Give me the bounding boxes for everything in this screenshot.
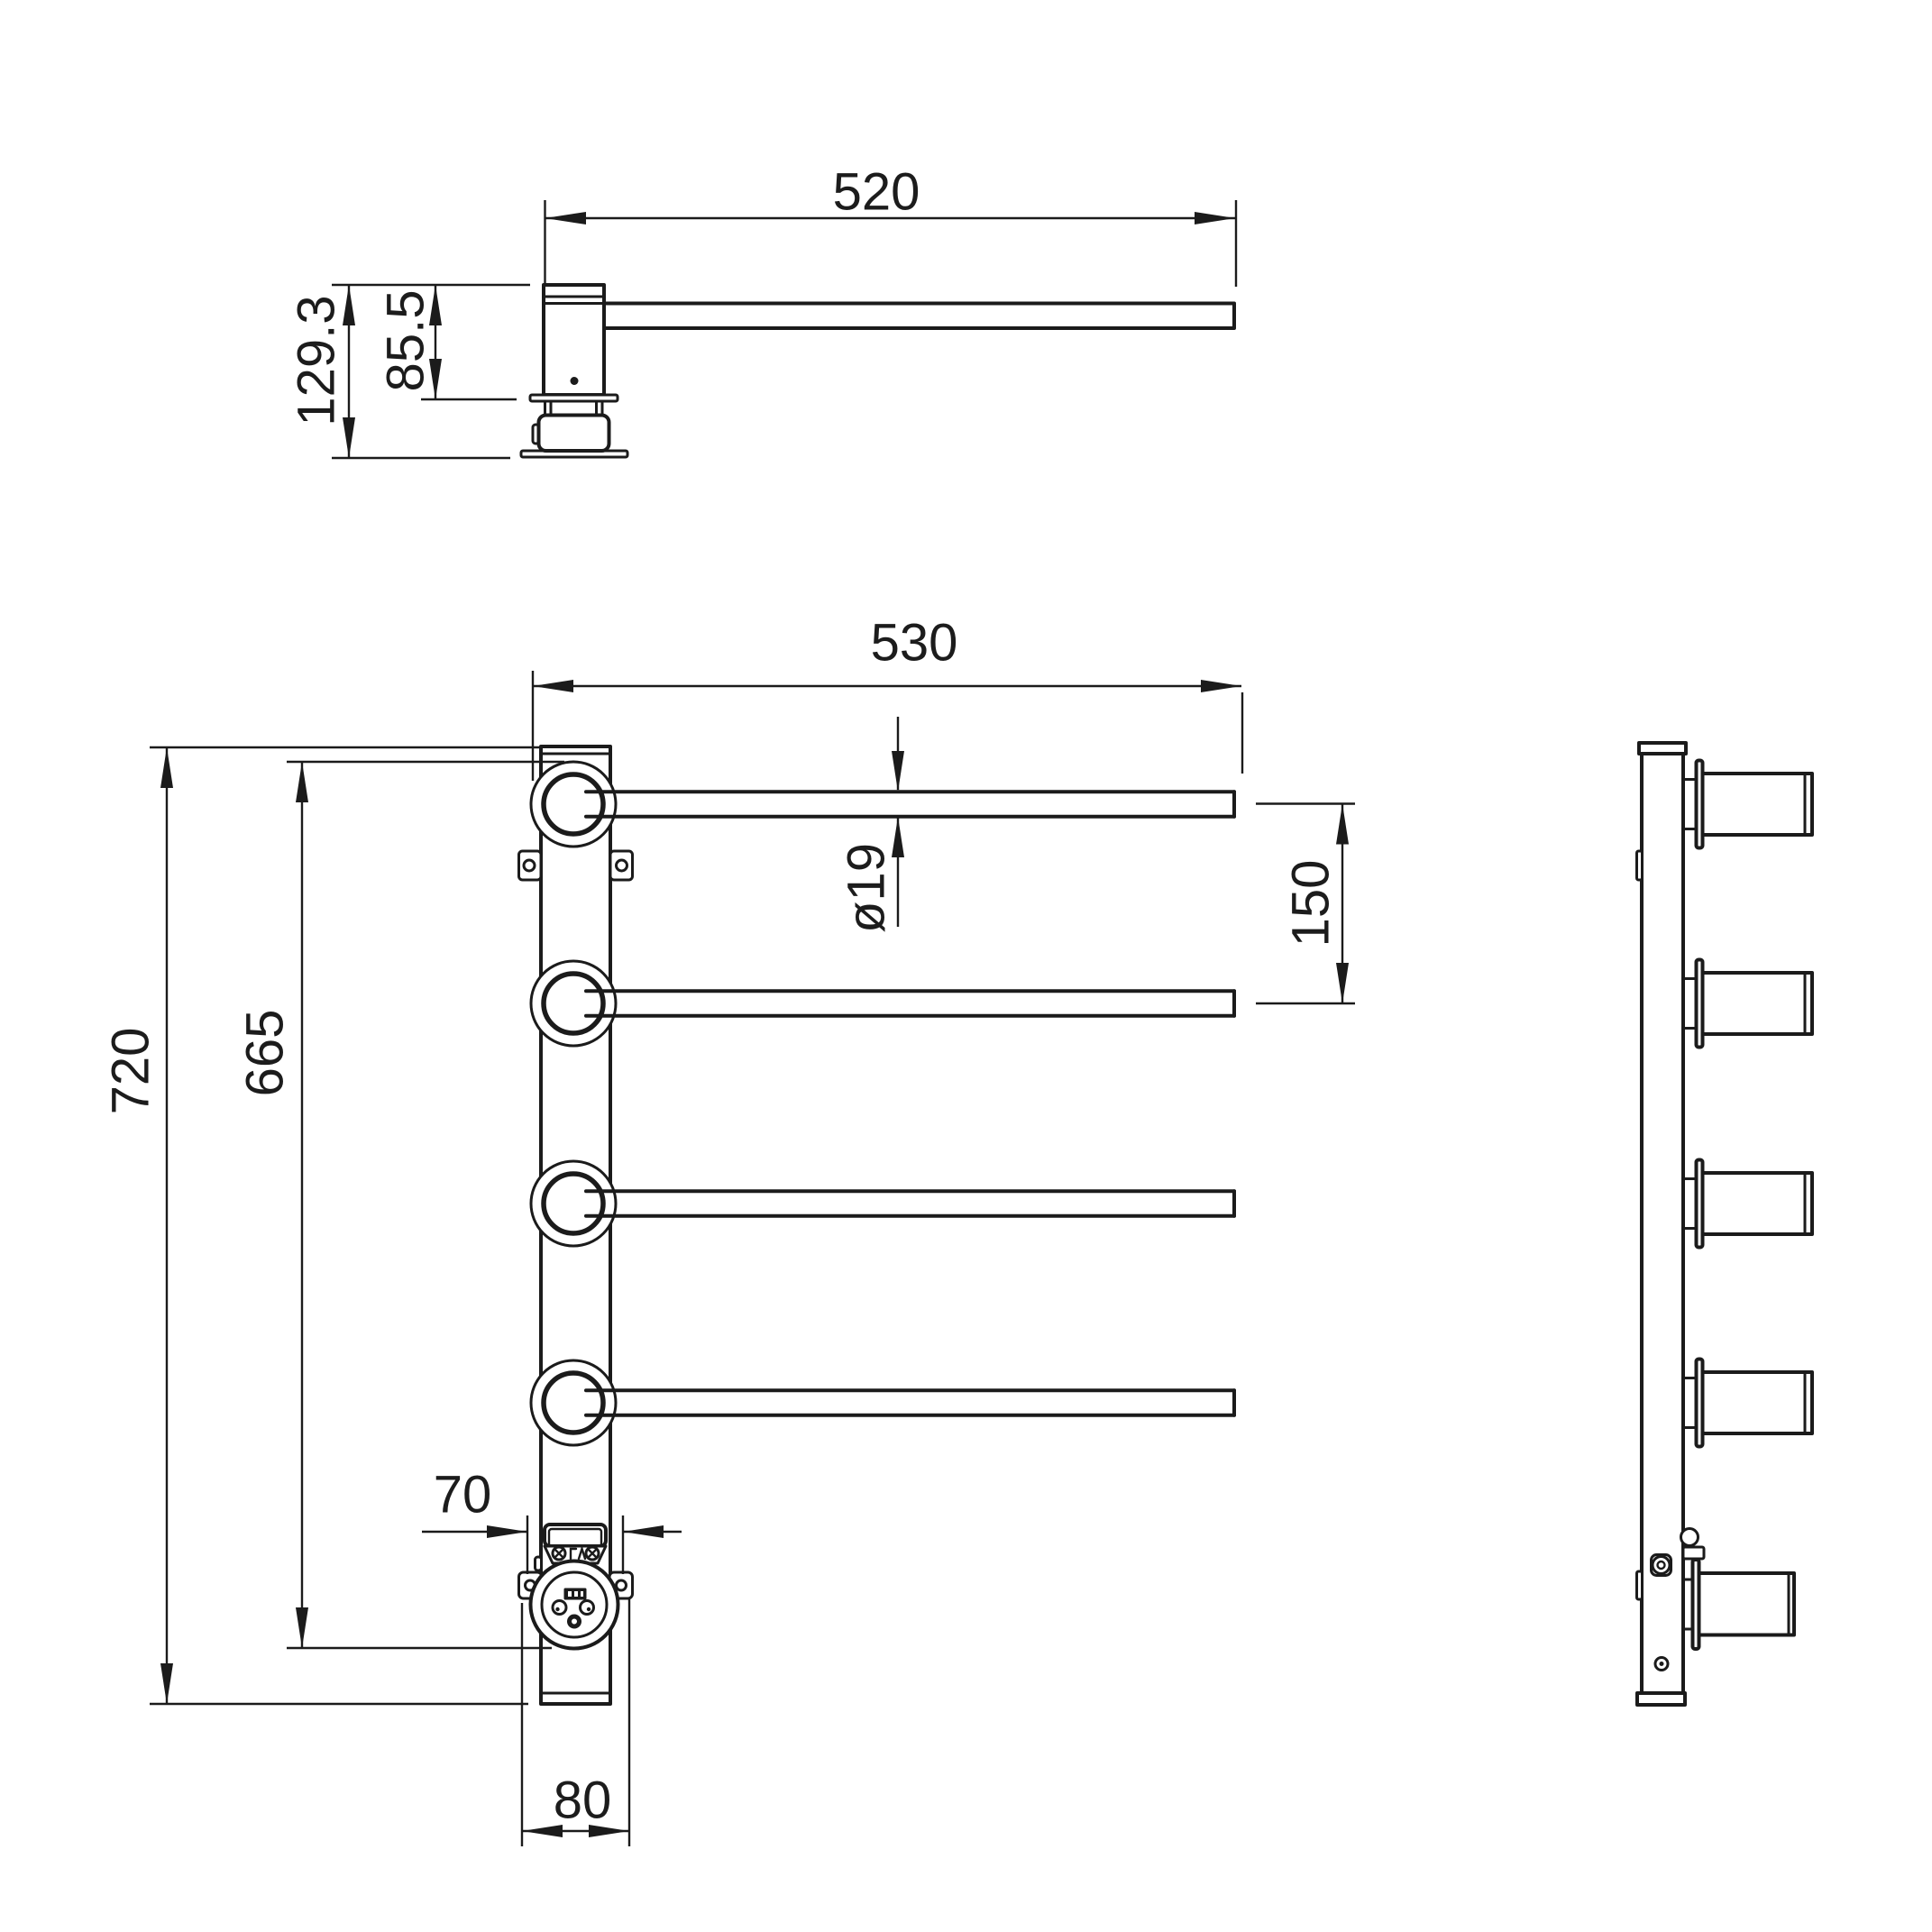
mounting-flange [530,395,618,401]
side-hub-3 [1683,1160,1812,1248]
inspection-port-ring [1653,1557,1670,1574]
standoff-left [545,401,552,416]
junction-box-top-view [539,416,609,452]
hub-inner-ring [544,774,603,834]
dimension-label: 520 [833,162,920,221]
arrowhead-down [160,1663,173,1704]
dimension-label: 150 [1281,860,1340,948]
swivel-bar-4 [531,1360,1234,1445]
arrowhead-right [1201,680,1241,692]
dim-overall-width-530: 530 [533,613,1242,781]
socket-outer-ring [531,1561,618,1649]
arrowhead-up [296,762,308,802]
dimension-label: 530 [871,613,958,672]
clip-bracket [1683,1547,1704,1559]
side-post-top-cap [1639,743,1686,754]
dimension-label: 665 [235,1010,294,1097]
arrowhead-down [892,751,904,792]
dimension-label: 70 [434,1465,492,1524]
dimension-label: ø19 [837,843,895,933]
dimension-label: 720 [101,1028,160,1115]
side-hub-4 [1683,1360,1812,1447]
dimension-label: 80 [554,1771,612,1829]
set-screw-dot [571,377,579,385]
power-socket [531,1561,618,1649]
dim-overall-height-720: 720 [101,747,539,1704]
wall-clip-bump-bottom [1637,1571,1643,1599]
standoff-right [597,401,603,416]
dimension-label: 129.3 [287,295,345,426]
dim-arm-length-520: 520 [545,162,1237,287]
hub-cylinder [1703,774,1813,835]
control-box-cover [545,1525,606,1546]
arrowhead-up [1336,804,1349,845]
dim-hub-height-85-5: 85.5 [376,285,517,399]
side-view [1637,743,1813,1705]
wall-clip-bump-top [1637,851,1643,880]
side-hub-1 [1683,761,1812,848]
arrowhead-up [160,747,173,788]
clip-ring [1681,1529,1699,1546]
hub-inner-ring [544,1174,603,1233]
arrowhead-down [1336,963,1349,1003]
side-hub-2 [1683,960,1812,1048]
slot-tick [568,1591,572,1597]
drain-screw-dot [1660,1662,1664,1666]
arrowhead-down [296,1607,308,1648]
socket-cylinder [1699,1573,1795,1635]
slot-tick [574,1591,578,1597]
dim-socket-span-665: 665 [235,762,564,1648]
swivel-bar-3 [531,1161,1234,1246]
side-post-bottom-cap [1637,1693,1685,1705]
arrowhead-left [533,680,573,692]
drawing-sheet: 520 129.3 85.5 [0,0,1932,1932]
wall-bracket-tab-left [519,851,542,880]
arrowhead-left [545,212,587,224]
hub-cylinder [1703,1173,1813,1234]
wall-bracket-tab-right [610,851,633,880]
hub-cylinder [1703,1372,1813,1433]
slot-tick [581,1591,583,1597]
arrowhead-right [487,1525,527,1538]
dimension-label: 85.5 [376,290,435,392]
hub-cylinder [1703,973,1813,1034]
socket-pin-left-dot [555,1607,559,1611]
cable-clip-bump [536,1557,542,1570]
wall-plate-edge [521,451,627,457]
inspection-port-hole [1658,1561,1665,1569]
swivel-bar-2 [531,961,1234,1046]
side-socket-boss [1681,1529,1795,1650]
arrowhead-right [1195,212,1235,224]
hub-inner-ring [544,1373,603,1433]
arrowhead-left [623,1525,664,1538]
socket-pin-bottom-hole [572,1619,577,1625]
towel-arm-top-view [604,304,1234,329]
swivel-bar-1 [531,762,1234,847]
technical-drawing-canvas: 520 129.3 85.5 [0,0,1932,1932]
hub-inner-ring [544,974,603,1033]
junction-box-tab [533,425,539,444]
socket-pin-right-dot [587,1607,591,1611]
dim-bar-diameter-19: ø19 [837,717,904,933]
top-view [521,285,1234,457]
dim-bar-spacing-150: 150 [1256,804,1355,1004]
